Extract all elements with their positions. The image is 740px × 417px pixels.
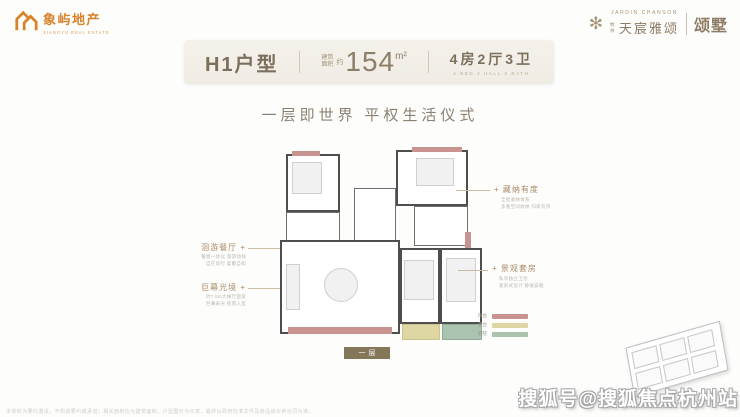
keyplan-block [663,358,691,382]
area-label: 建筑 面积 [321,55,333,70]
project-subbrand: 颂墅 [694,12,728,36]
rooms-text: 4房2厅3卫 [450,49,533,69]
callout-dining-desc1: 餐厨一体化 洄游动线 [150,253,246,260]
project-name-row: 杭州 天宸雅颂 [610,18,679,37]
area-label-line1: 建筑 [321,55,333,61]
callout-light-desc2: 巨幕采光 揽景入室 [150,300,246,307]
callout-dining-line [248,248,280,249]
sofa [286,264,300,310]
room-closet-hall [286,212,340,242]
callout-marker: + [240,243,246,252]
project-name-cn: 天宸雅颂 [619,18,679,37]
room-bathroom [414,206,468,246]
callout-suite-text: 景观套房 [501,264,537,273]
house-logo-icon [14,9,38,33]
floor-tag: 一层 [344,347,390,359]
logo-divider [686,13,687,35]
callout-suite-desc2: 套房式设计 静谧安眠 [499,282,599,289]
callout-storage-desc1: 全屋收纳体系 [501,196,601,203]
plan-legend: 阳台 露台 庭院 [478,313,528,340]
callout-suite-desc1: 私享独立卫浴 [499,275,599,282]
rooms-block: 4房2厅3卫 4 BED 2 HALL 3 BATH [450,49,533,76]
callout-dining-text: 洄游餐厅 [201,243,237,252]
bed-top-left [292,162,322,194]
project-prefix: 杭州 [610,22,617,32]
bed-middle [404,260,434,300]
rooms-caption: 4 BED 2 HALL 3 BATH [450,71,533,76]
accent-wall-top-left [292,151,320,156]
legend-label-terrace: 露台 [478,322,489,328]
callout-marker: + [492,264,498,273]
callout-storage-line [456,190,490,191]
unit-header-bar: H1户型 建筑 面积 约 154 m² 4房2厅3卫 4 BED 2 HALL … [184,40,554,84]
room-entry-hall [354,188,396,242]
legend-swatch-terrace [492,323,528,328]
callout-marker: + [494,185,500,194]
floorplan [262,136,484,350]
callout-dining-desc2: 自在穿行 宴聚自如 [150,260,246,267]
area-approx: 约 [336,57,343,67]
tagline: 一层即世界 平权生活仪式 [0,104,740,125]
legend-swatch-balcony [492,314,528,319]
disclaimer: 本资料为要约邀请，不构成要约或承诺；相关面积均为建筑面积，户型图仅为示意，最终以… [6,408,606,415]
legend-row-garden: 庭院 [478,331,528,337]
unit-title: H1户型 [205,48,279,77]
header-divider [428,51,429,73]
callout-light-line [248,288,280,289]
callout-light-text: 巨幕光境 [201,283,237,292]
accent-wall-right [465,232,471,248]
watermark: 搜狐号@搜狐焦点杭州站 [518,384,738,411]
area-unit: m² [395,51,407,62]
dining-table [324,268,358,302]
callout-storage-text: 藏纳有度 [503,185,539,194]
callout-light-desc1: 约7.8m大横厅面宽 [150,293,246,300]
header-divider [299,51,300,73]
project-logo: ✻ JARDIN CHANSON 杭州 天宸雅颂 颂墅 [589,10,728,37]
brand-name: 象屿地产 [43,9,109,28]
callout-dining-title: 洄游餐厅 + [150,242,246,253]
area-value: 154 [345,46,395,78]
legend-row-terrace: 露台 [478,322,528,328]
legend-label-balcony: 阳台 [478,313,489,319]
area-label-line2: 面积 [321,62,333,68]
bed-master [446,258,476,302]
flower-icon: ✻ [589,15,603,32]
garden-strip-green [442,324,482,340]
callout-light-desc: 约7.8m大横厅面宽 巨幕采光 揽景入室 [150,293,246,307]
callout-suite-title: + 景观套房 [492,263,592,274]
project-name-block: JARDIN CHANSON 杭州 天宸雅颂 [610,10,679,37]
callout-light-title: 巨幕光境 + [150,282,246,293]
legend-row-balcony: 阳台 [478,313,528,319]
callout-suite-line [458,270,488,271]
brand-subtext: XIANGYU REAL ESTATE [43,30,109,35]
page: 象屿地产 XIANGYU REAL ESTATE ✻ JARDIN CHANSO… [0,0,740,417]
keyplan-block [691,350,719,374]
terrace-strip-yellow [402,324,440,340]
callout-storage-desc2: 多重空间收纳 归家有序 [501,203,601,210]
accent-wall-top-right [412,147,462,152]
callout-suite-desc: 私享独立卫浴 套房式设计 静谧安眠 [499,275,599,289]
project-name-en: JARDIN CHANSON [611,10,678,16]
legend-swatch-garden [492,332,528,337]
callout-dining-desc: 餐厨一体化 洄游动线 自在穿行 宴聚自如 [150,253,246,267]
bed-top-right [416,158,454,186]
callout-storage-title: + 藏纳有度 [494,184,594,195]
legend-label-garden: 庭院 [478,331,489,337]
brand-logo: 象屿地产 XIANGYU REAL ESTATE [14,9,109,35]
callout-storage-desc: 全屋收纳体系 多重空间收纳 归家有序 [501,196,601,210]
keyplan-block [659,337,687,361]
keyplan-block [631,345,659,369]
balcony-strip-pink [288,327,392,334]
keyplan-block [687,329,715,353]
callout-marker: + [240,283,246,292]
brand-text: 象屿地产 XIANGYU REAL ESTATE [43,9,109,35]
area-block: 建筑 面积 约 154 m² [321,46,406,78]
